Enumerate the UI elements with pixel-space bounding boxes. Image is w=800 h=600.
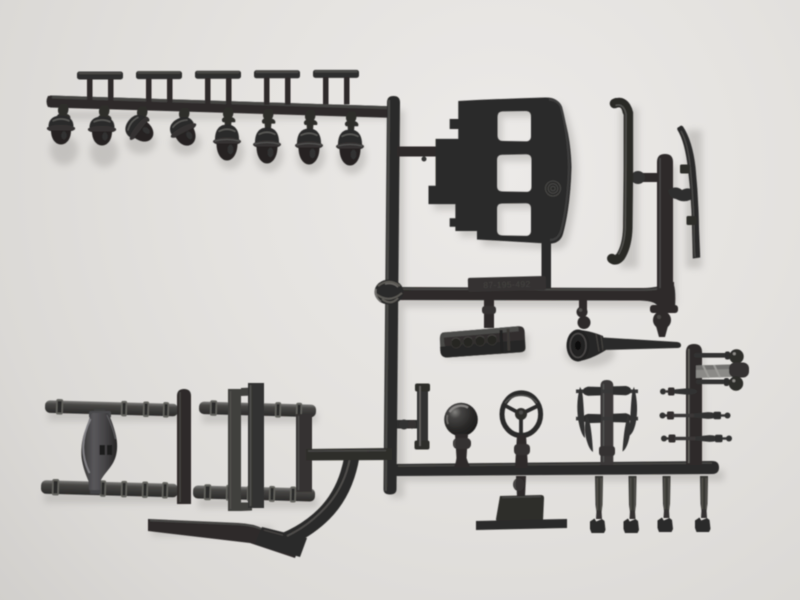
svg-text:87-195-492: 87-195-492 bbox=[483, 279, 531, 290]
